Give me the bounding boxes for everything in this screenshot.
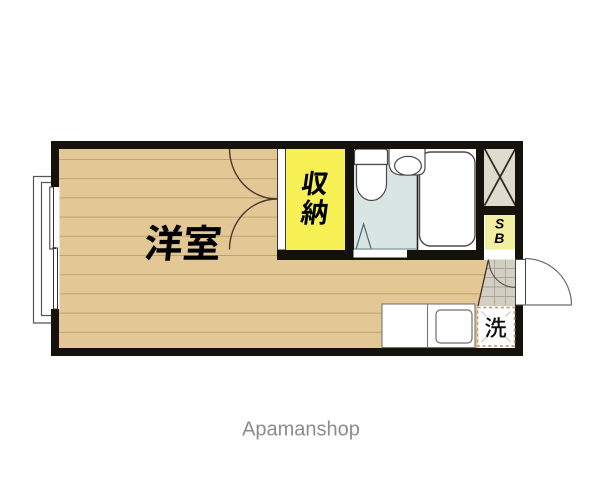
svg-text:Apamanshop: Apamanshop — [242, 419, 360, 441]
svg-text:B: B — [494, 230, 504, 246]
